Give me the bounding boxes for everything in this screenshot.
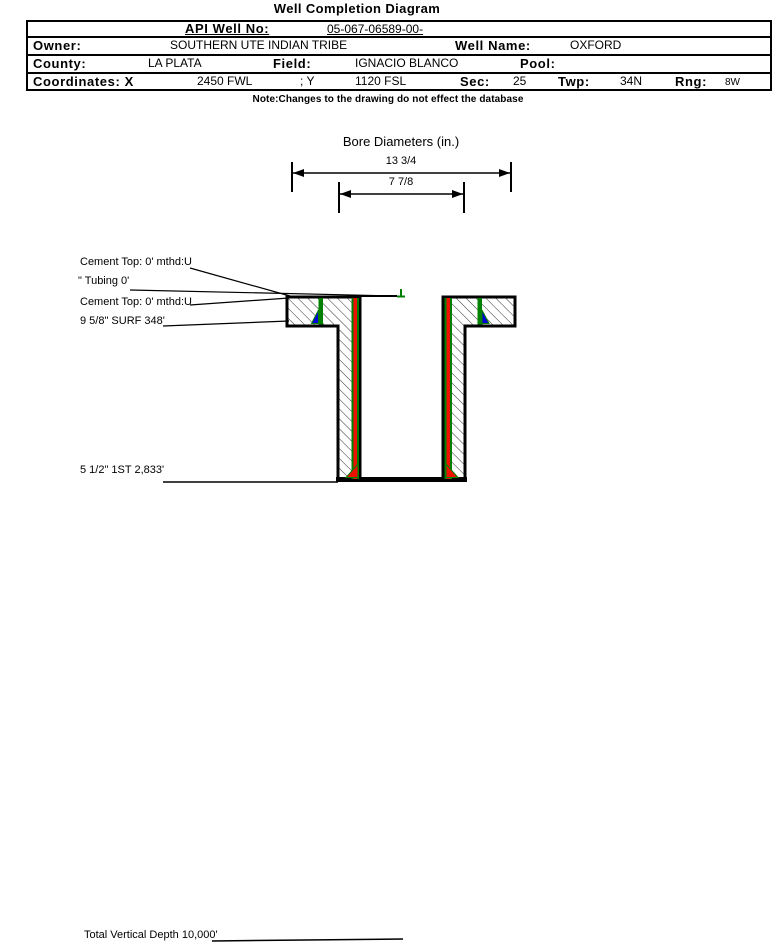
leader-total-depth — [212, 939, 403, 941]
sec-label: Sec: — [460, 75, 490, 89]
right-casing-cement — [447, 298, 451, 479]
left-annulus-body — [287, 297, 360, 480]
header-row-owner: Owner: SOUTHERN UTE INDIAN TRIBE Well Na… — [28, 38, 770, 56]
outer-dim-arrow-left — [293, 169, 304, 177]
header-row-coordinates: Coordinates: X 2450 FWL ; Y 1120 FSL Sec… — [28, 74, 770, 89]
pool-label: Pool: — [520, 57, 556, 71]
api-well-no-value: 05-067-06589-00- — [327, 23, 423, 36]
inner-diameter-label: 7 7/8 — [341, 177, 461, 189]
field-label: Field: — [273, 57, 311, 71]
twp-value: 34N — [620, 75, 642, 88]
page-title: Well Completion Diagram — [0, 2, 714, 16]
owner-value: SOUTHERN UTE INDIAN TRIBE — [170, 39, 347, 52]
owner-label: Owner: — [33, 39, 81, 53]
database-note: Note:Changes to the drawing do not effec… — [0, 95, 776, 106]
twp-label: Twp: — [558, 75, 590, 89]
left-casing-cement — [354, 298, 358, 479]
cement-top-2-label: Cement Top: 0' mthd:U — [80, 297, 192, 309]
well-completion-page: Well Completion Diagram API Well No: 05-… — [0, 0, 776, 945]
rng-label: Rng: — [675, 75, 707, 89]
well-header-table: API Well No: 05-067-06589-00- Owner: SOU… — [26, 20, 772, 91]
tubing-label: " Tubing 0' — [78, 276, 129, 288]
sec-value: 25 — [513, 75, 526, 88]
cement-top-1-label: Cement Top: 0' mthd:U — [80, 257, 192, 269]
county-value: LA PLATA — [148, 57, 202, 70]
county-label: County: — [33, 57, 86, 71]
coordinates-x-value: 2450 FWL — [197, 75, 252, 88]
header-row-county: County: LA PLATA Field: IGNACIO BLANCO P… — [28, 56, 770, 74]
coordinates-y-label: ; Y — [300, 75, 314, 88]
coordinates-y-value: 1120 FSL — [355, 75, 406, 88]
well-name-value: OXFORD — [570, 39, 621, 52]
leader-cement-top-2 — [190, 298, 289, 305]
bore-diameters-title: Bore Diameters (in.) — [301, 135, 501, 149]
right-surface-casing — [478, 298, 483, 325]
field-value: IGNACIO BLANCO — [355, 57, 458, 70]
inner-dim-arrow-left — [340, 190, 351, 198]
surface-casing-label: 9 5/8" SURF 348' — [80, 316, 165, 328]
outer-diameter-label: 13 3/4 — [341, 156, 461, 168]
outer-dim-arrow-right — [499, 169, 510, 177]
rng-value: 8W — [725, 77, 740, 88]
leader-surface-casing — [163, 321, 289, 326]
inner-dim-arrow-right — [452, 190, 463, 198]
coordinates-label: Coordinates: X — [33, 75, 134, 89]
production-casing-label: 5 1/2" 1ST 2,833' — [80, 465, 164, 477]
header-row-api: API Well No: 05-067-06589-00- — [28, 22, 770, 38]
well-name-label: Well Name: — [455, 39, 531, 53]
api-well-no-label: API Well No: — [185, 22, 269, 36]
total-depth-label: Total Vertical Depth 10,000' — [84, 930, 218, 942]
left-surface-casing — [319, 298, 324, 325]
